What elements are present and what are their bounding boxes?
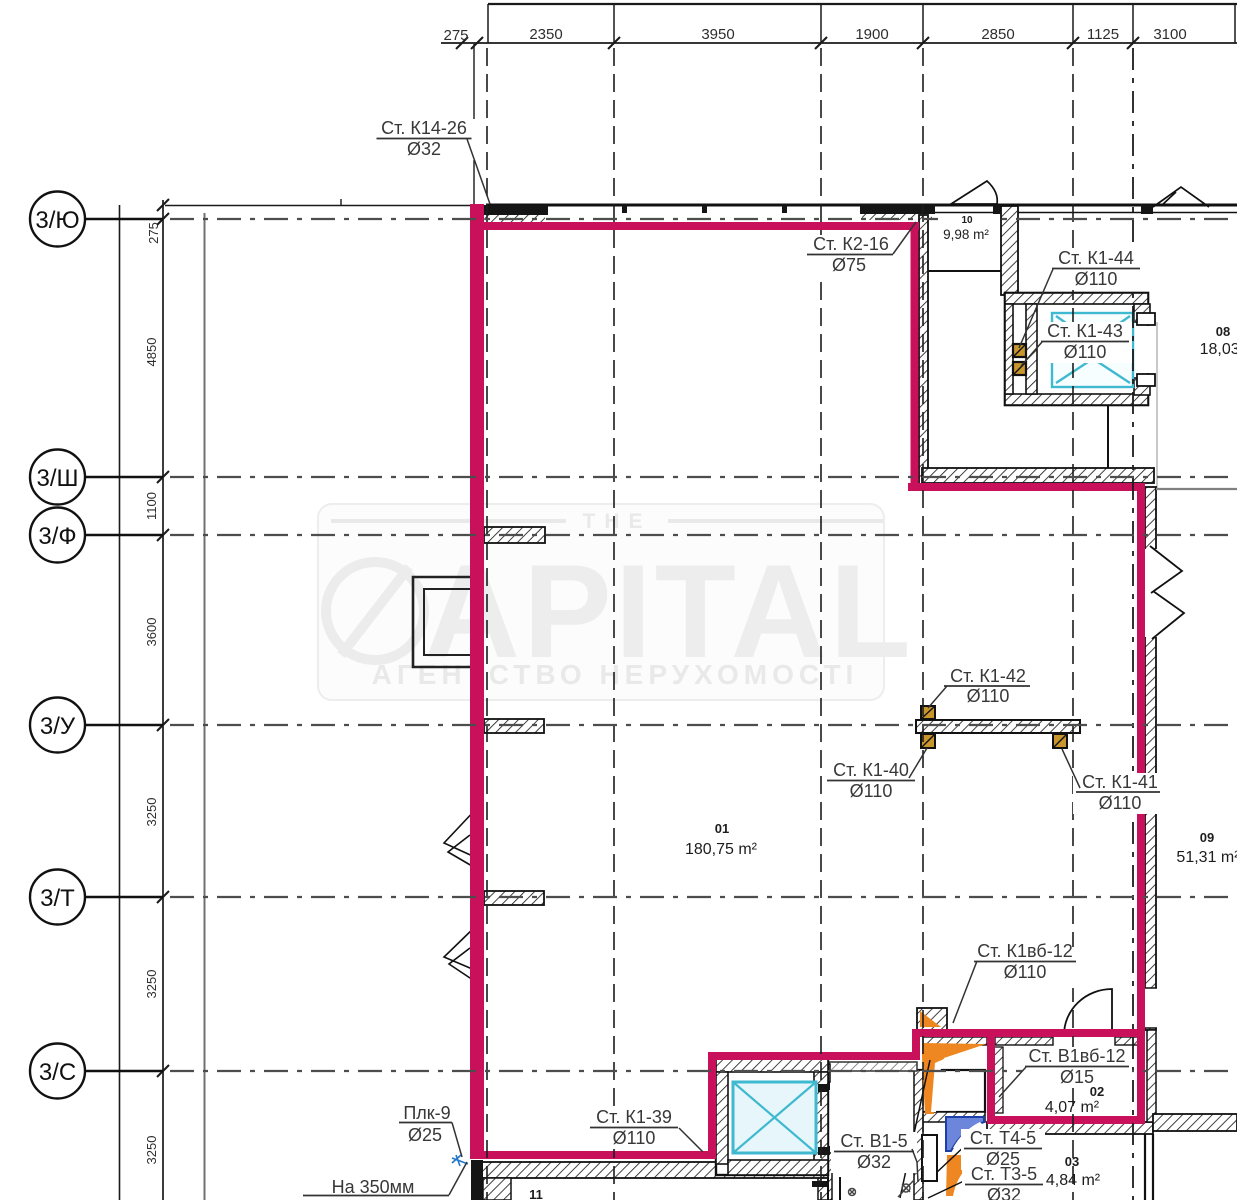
svg-text:3600: 3600 [144,618,159,647]
svg-text:3950: 3950 [701,26,734,43]
svg-text:Ст. К1-43: Ст. К1-43 [1047,321,1123,341]
svg-text:Ø25: Ø25 [408,1125,442,1145]
svg-text:Ст. Т3-5: Ст. Т3-5 [971,1164,1037,1184]
svg-text:18,03 м²: 18,03 м² [1200,341,1237,358]
svg-text:Ст. К1-41: Ст. К1-41 [1082,772,1158,792]
svg-text:Ø110: Ø110 [850,781,893,801]
svg-text:03: 03 [1065,1154,1079,1169]
svg-text:1125: 1125 [1087,26,1119,43]
svg-text:275: 275 [443,27,468,44]
svg-text:275: 275 [146,222,161,244]
svg-text:1900: 1900 [855,26,888,43]
svg-text:9,98 m²: 9,98 m² [943,227,989,242]
svg-text:Ст. К1-40: Ст. К1-40 [833,760,909,780]
svg-text:THE: THE [583,510,652,533]
svg-text:Ø110: Ø110 [1064,342,1107,362]
svg-text:3100: 3100 [1153,26,1186,43]
svg-text:3/С: 3/С [39,1059,76,1086]
svg-text:3/Ф: 3/Ф [38,523,76,550]
svg-text:2850: 2850 [981,26,1014,43]
svg-text:Ст. К14-26: Ст. К14-26 [381,118,467,138]
svg-text:Плк-9: Плк-9 [403,1103,450,1123]
svg-text:10: 10 [961,215,973,226]
svg-text:3250: 3250 [144,798,159,827]
svg-text:Ø32: Ø32 [857,1152,891,1172]
svg-text:Ø110: Ø110 [1004,962,1047,982]
svg-text:51,31 m²: 51,31 m² [1176,849,1237,866]
svg-text:Ст. В1-5: Ст. В1-5 [840,1131,907,1151]
svg-text:Ø110: Ø110 [1099,793,1142,813]
svg-text:Ø110: Ø110 [1075,269,1118,289]
svg-text:АГЕНТСТВО НЕРУХОМОСТІ: АГЕНТСТВО НЕРУХОМОСТІ [372,659,859,690]
svg-text:3/Т: 3/Т [40,885,75,912]
svg-text:Ст. Т4-5: Ст. Т4-5 [970,1128,1036,1148]
svg-text:3/Ю: 3/Ю [35,207,79,234]
svg-text:Ст. К2-16: Ст. К2-16 [813,234,889,254]
svg-text:2350: 2350 [529,26,562,43]
svg-text:Ст. К1вб-12: Ст. К1вб-12 [977,941,1072,961]
svg-text:09: 09 [1200,830,1214,845]
svg-text:4850: 4850 [144,338,159,367]
svg-text:02: 02 [1090,1084,1104,1099]
svg-text:Ø110: Ø110 [967,686,1010,706]
svg-text:180,75 m²: 180,75 m² [685,841,758,858]
svg-text:Ø110: Ø110 [613,1128,656,1148]
svg-text:Ст. К1-42: Ст. К1-42 [950,666,1026,686]
svg-text:На 350мм: На 350мм [332,1177,415,1197]
svg-text:4,84 m²: 4,84 m² [1046,1172,1101,1189]
svg-text:Ø32: Ø32 [987,1185,1021,1200]
svg-text:3250: 3250 [144,970,159,999]
svg-text:1100: 1100 [144,492,159,520]
svg-text:3/У: 3/У [40,713,76,740]
svg-text:11: 11 [529,1187,543,1200]
svg-text:Ст. К1-39: Ст. К1-39 [596,1107,672,1127]
svg-text:Ст. К1-44: Ст. К1-44 [1058,248,1134,268]
svg-text:3/Ш: 3/Ш [36,465,78,492]
svg-text:Ст. В1вб-12: Ст. В1вб-12 [1029,1046,1126,1066]
svg-text:4,07 m²: 4,07 m² [1045,1099,1100,1116]
svg-text:01: 01 [715,821,729,836]
svg-text:Ø75: Ø75 [832,255,866,275]
svg-text:3250: 3250 [144,1136,159,1165]
svg-text:Ø32: Ø32 [407,139,441,159]
svg-text:08: 08 [1216,324,1230,339]
